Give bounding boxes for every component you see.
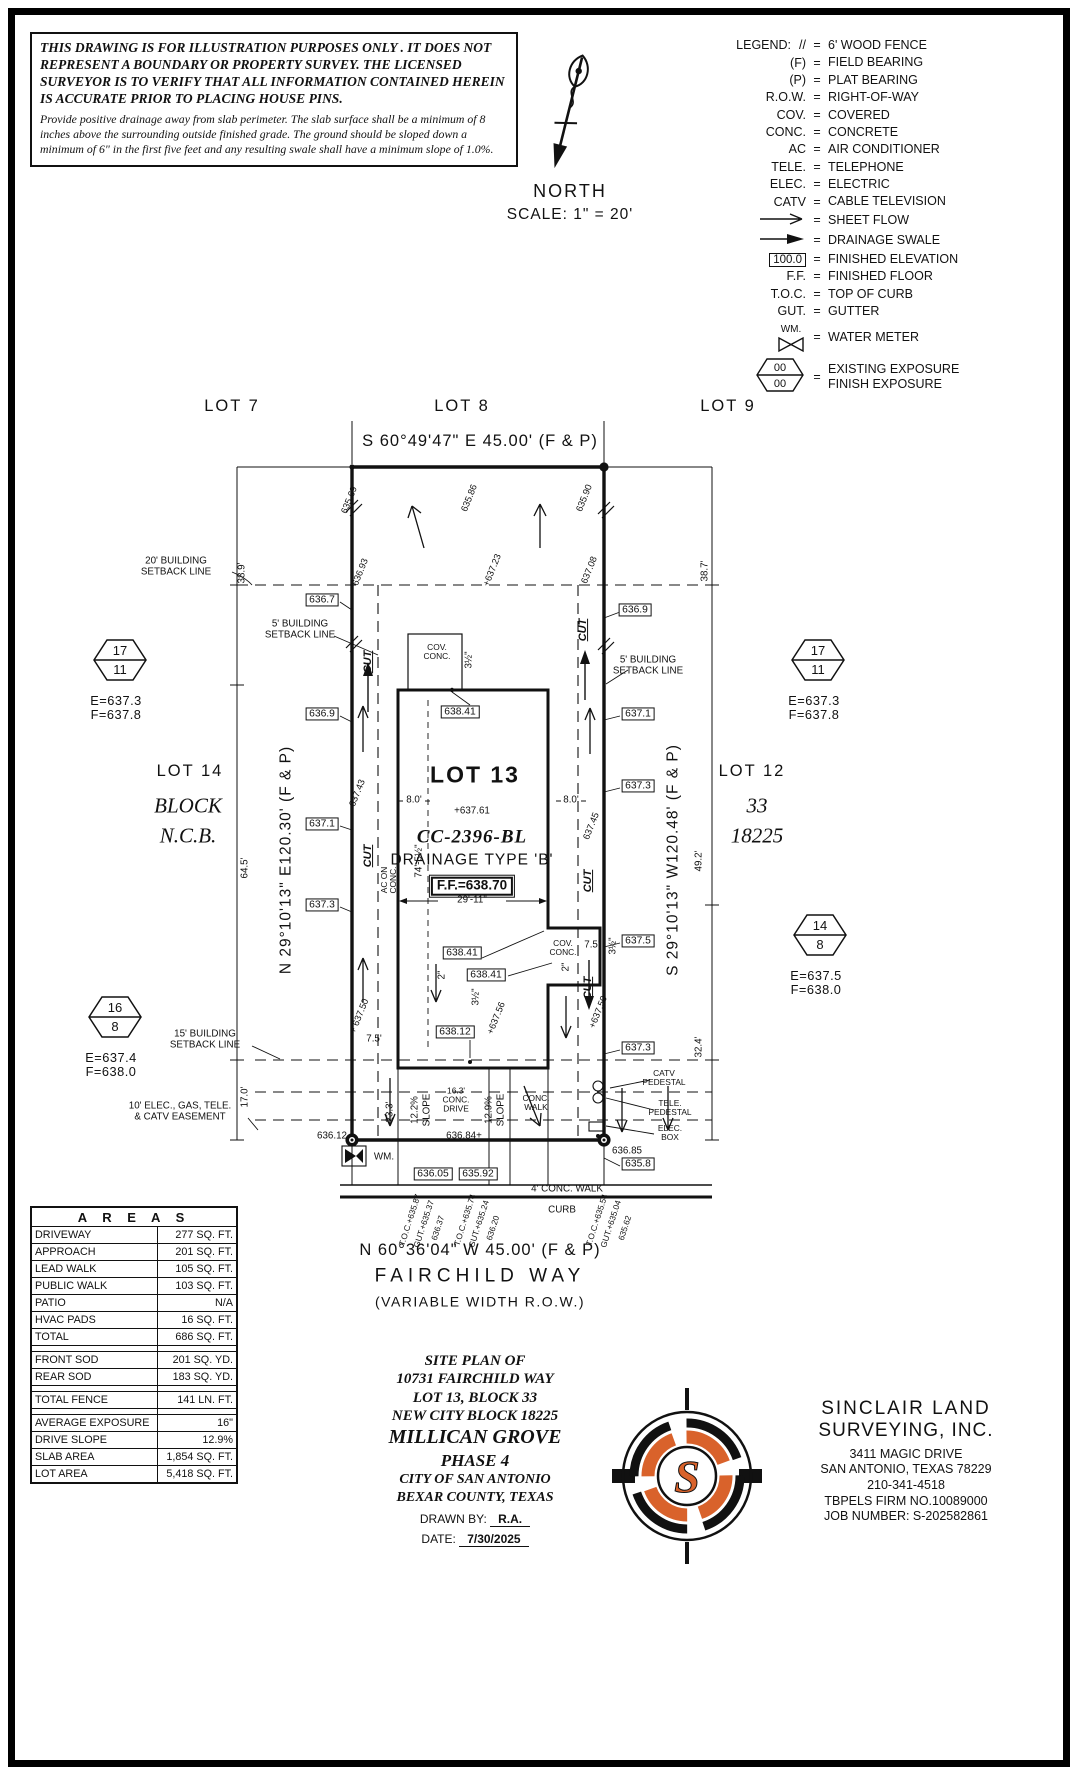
label-easement: 10' ELEC., GAS, TELE. & CATV EASEMENT [129, 1101, 231, 1122]
areas-row-6: TOTAL686 SQ. FT. [31, 1329, 237, 1346]
label-bx-636-9-r: 636.9 [619, 603, 652, 616]
label-dim-32-4: 32.4' [695, 1037, 706, 1058]
label-row-note: (VARIABLE WIDTH R.O.W.) [375, 1294, 585, 1309]
areas-label: SLAB AREA [31, 1449, 158, 1466]
label-in-3h-b: 3½" [472, 988, 483, 1005]
label-bx-636-05: 636.05 [414, 1167, 453, 1180]
label-bx-637-1-r: 637.1 [622, 707, 655, 720]
areas-row-1: APPROACH201 SQ. FT. [31, 1244, 237, 1261]
areas-value: 686 SQ. FT. [158, 1329, 238, 1346]
areas-row-2: LEAD WALK105 SQ. FT. [31, 1261, 237, 1278]
label-el-635-86: 635.86 [459, 483, 479, 513]
label-el-637-45: 637.45 [581, 811, 601, 841]
label-dim-7-5-right: 7.5' [584, 941, 600, 952]
title-line-3: NEW CITY BLOCK 18225 [305, 1407, 645, 1425]
label-hx1-e: E=637.3 [90, 694, 142, 708]
title-line-2: LOT 13, BLOCK 33 [305, 1389, 645, 1407]
areas-value: 201 SQ. YD. [158, 1352, 238, 1369]
areas-title: A R E A S [31, 1207, 237, 1227]
areas-row-14: DRIVE SLOPE12.9% [31, 1432, 237, 1449]
label-bx-637-1-l: 637.1 [306, 817, 339, 830]
areas-label: LOT AREA [31, 1466, 158, 1484]
label-dim-38-7: 38.7' [701, 561, 712, 582]
areas-label: HVAC PADS [31, 1312, 158, 1329]
label-slope-12-9-w: SLOPE [497, 1094, 508, 1127]
areas-row-13: AVERAGE EXPOSURE16" [31, 1415, 237, 1432]
areas-row-16: LOT AREA5,418 SQ. FT. [31, 1466, 237, 1484]
areas-table: A R E A SDRIVEWAY277 SQ. FT.APPROACH201 … [30, 1206, 238, 1484]
svg-text:S: S [674, 1451, 700, 1502]
label-slope-12-2-w: SLOPE [423, 1094, 434, 1127]
label-dim-64-5: 64.5' [241, 858, 252, 879]
label-sb20: 20' BUILDING SETBACK LINE [141, 556, 211, 577]
label-el-636-85: 636.85 [612, 1147, 642, 1158]
label-wm: WM. [374, 1153, 394, 1164]
label-lot7: LOT 7 [204, 398, 260, 416]
label-dim-8-right: 8.0' [563, 796, 579, 807]
label-lot12: LOT 12 [719, 763, 786, 781]
firm-job-number: JOB NUMBER: S-202582861 [758, 1509, 1054, 1525]
areas-label: AVERAGE EXPOSURE [31, 1415, 158, 1432]
areas-value: 12.9% [158, 1432, 238, 1449]
areas-row-8: FRONT SOD201 SQ. YD. [31, 1352, 237, 1369]
label-cut1: CUT [363, 651, 375, 674]
areas-row-15: SLAB AREA1,854 SQ. FT. [31, 1449, 237, 1466]
label-dim-8-left: 8.0' [406, 796, 422, 807]
label-cut5: CUT [583, 977, 595, 1000]
label-dim-17-0: 17.0' [241, 1087, 252, 1108]
label-dim-49-2: 49.2' [695, 851, 706, 872]
label-ncb-num: 18225 [731, 825, 784, 848]
label-spot-637-61: +637.61 [454, 807, 490, 818]
label-hx2-top: 17 [811, 644, 825, 658]
firm-block: SINCLAIR LAND SURVEYING, INC. 3411 MAGIC… [758, 1398, 1054, 1525]
title-line-0: SITE PLAN OF [305, 1352, 645, 1370]
areas-row-0: DRIVEWAY277 SQ. FT. [31, 1227, 237, 1244]
label-hx3-f: F=638.0 [791, 983, 842, 997]
areas-row-11: TOTAL FENCE141 LN. FT. [31, 1392, 237, 1409]
title-line-7: BEXAR COUNTY, TEXAS [305, 1489, 645, 1507]
label-dim-23-3: 23.3' [386, 1102, 397, 1123]
label-street: FAIRCHILD WAY [375, 1267, 586, 1288]
areas-value: 141 LN. FT. [158, 1392, 238, 1409]
label-tele-ped: TELE. PEDESTAL [648, 1099, 691, 1117]
label-sb5-right: 5' BUILDING SETBACK LINE [613, 655, 683, 676]
label-g2: 636.20 [485, 1215, 501, 1242]
label-dim-74: 74'-5½" [415, 844, 426, 877]
areas-label: REAR SOD [31, 1369, 158, 1386]
label-el-637-50-l: + 637.50 [348, 997, 371, 1035]
label-el-637-43: 637.43 [347, 778, 367, 808]
areas-value: 5,418 SQ. FT. [158, 1466, 238, 1484]
label-cov-conc-right: COV. CONC. [550, 939, 577, 957]
label-el-637-08: 637.08 [579, 555, 599, 585]
areas-value: 16 SQ. FT. [158, 1312, 238, 1329]
title-line-6: CITY OF SAN ANTONIO [305, 1471, 645, 1489]
label-slope-12-2: 12.2% [411, 1096, 422, 1124]
label-hx4-f: F=638.0 [86, 1065, 137, 1079]
label-curb: CURB [548, 1206, 576, 1217]
label-bx-638-12: 638.12 [436, 1025, 475, 1038]
areas-value: 201 SQ. FT. [158, 1244, 238, 1261]
label-hx1-top: 17 [113, 644, 127, 658]
label-conc-walk: CONC. WALK [523, 1094, 550, 1112]
drawn-by-label: DRAWN BY: [420, 1512, 487, 1526]
site-plan-sheet: THIS DRAWING IS FOR ILLUSTRATION PURPOSE… [0, 0, 1078, 1775]
areas-value: 103 SQ. FT. [158, 1278, 238, 1295]
title-line-1: 10731 FAIRCHILD WAY [305, 1370, 645, 1388]
label-cut2: CUT [363, 845, 375, 868]
label-bx-635-92: 635.92 [459, 1167, 498, 1180]
title-block-lines: SITE PLAN OF10731 FAIRCHILD WAYLOT 13, B… [305, 1352, 645, 1506]
label-bear-top: S 60°49'47" E 45.00' (F & P) [362, 433, 598, 451]
date-label: DATE: [421, 1532, 455, 1546]
title-line-4: MILLICAN GROVE [305, 1425, 645, 1450]
label-bear-bottom: N 60°36'04" W 45.00' (F & P) [359, 1242, 600, 1260]
date-row: DATE: 7/30/2025 [305, 1532, 645, 1546]
sinclair-logo: S [612, 1386, 762, 1571]
areas-label: PATIO [31, 1295, 158, 1312]
label-bear-right: S 29°10'13" W120.48' (F & P) [666, 744, 683, 976]
label-el-637-50-r: +637.50 [587, 994, 609, 1029]
firm-tbpels: TBPELS FIRM NO.10089000 [758, 1494, 1054, 1510]
label-hx2-bot: 11 [811, 663, 825, 677]
label-ac-on: AC ON CONC. [380, 867, 398, 894]
label-dim-7-5-left: 7.5' [366, 1035, 382, 1046]
label-bx-637-3-r1: 637.3 [622, 779, 655, 792]
label-in-3h-c: 3½" [609, 937, 620, 954]
label-bx-638-41-a: 638.41 [441, 705, 480, 718]
label-hx1-f: F=637.8 [91, 708, 142, 722]
areas-label: APPROACH [31, 1244, 158, 1261]
label-hx1-bot: 11 [113, 663, 127, 677]
areas-label: TOTAL FENCE [31, 1392, 158, 1409]
label-el-636-12: 636.12 [317, 1132, 347, 1143]
areas-label: DRIVE SLOPE [31, 1432, 158, 1449]
areas-row-5: HVAC PADS16 SQ. FT. [31, 1312, 237, 1329]
label-hx4-top: 16 [108, 1001, 122, 1015]
label-bx-635-8: 635.8 [622, 1157, 655, 1170]
areas-value: 16" [158, 1415, 238, 1432]
label-el-636-93: 636.93 [350, 557, 370, 587]
label-cov-conc-top: COV. CONC. [424, 643, 451, 661]
label-walk4: 4' CONC. WALK [531, 1185, 603, 1196]
date-value: 7/30/2025 [459, 1532, 528, 1547]
label-bx-638-41-c: 638.41 [467, 968, 506, 981]
label-sb15: 15' BUILDING SETBACK LINE [170, 1029, 240, 1050]
label-bear-left: N 29°10'13" E120.30' (F & P) [279, 746, 296, 974]
label-hx2-e: E=637.3 [788, 694, 840, 708]
areas-row-4: PATION/A [31, 1295, 237, 1312]
firm-address-1: 3411 MAGIC DRIVE [758, 1447, 1054, 1463]
areas-row-9: REAR SOD183 SQ. YD. [31, 1369, 237, 1386]
areas-label: TOTAL [31, 1329, 158, 1346]
label-el-637-56: +637.56 [485, 1000, 507, 1035]
drawn-by-value: R.A. [490, 1512, 530, 1527]
label-slope-12-9: 12.9% [485, 1096, 496, 1124]
label-elec-box: ELEC. BOX [658, 1124, 682, 1142]
label-lot9: LOT 9 [700, 398, 756, 416]
areas-value: 277 SQ. FT. [158, 1227, 238, 1244]
label-bx-637-5-r: 637.5 [622, 934, 655, 947]
areas-value: N/A [158, 1295, 238, 1312]
label-el-637-23: +637.23 [481, 552, 503, 587]
label-hx4-bot: 8 [111, 1020, 118, 1034]
label-lot8: LOT 8 [434, 398, 490, 416]
label-hx4-e: E=637.4 [85, 1051, 137, 1065]
label-el-635-90: 635.90 [574, 483, 594, 513]
areas-value: 105 SQ. FT. [158, 1261, 238, 1278]
label-bx-638-41-b: 638.41 [443, 946, 482, 959]
label-hx3-bot: 8 [816, 938, 823, 952]
label-bx-636-7: 636.7 [306, 593, 339, 606]
firm-phone: 210-341-4518 [758, 1478, 1054, 1494]
title-line-5: PHASE 4 [305, 1450, 645, 1471]
firm-name-1: SINCLAIR LAND [758, 1398, 1054, 1420]
label-hx3-e: E=637.5 [790, 969, 842, 983]
label-in-3h-a: 3½" [465, 651, 476, 668]
label-el-636-84: 636.84+ [446, 1132, 482, 1143]
firm-name-2: SURVEYING, INC. [758, 1420, 1054, 1442]
label-ncb-word: N.C.B. [160, 825, 217, 848]
label-hx3-top: 14 [813, 919, 827, 933]
label-dim-38-9: 38.9' [238, 563, 249, 584]
label-hx2-f: F=637.8 [789, 708, 840, 722]
label-bx-636-9-l: 636.9 [306, 707, 339, 720]
label-cut4: CUT [583, 870, 595, 893]
areas-value: 1,854 SQ. FT. [158, 1449, 238, 1466]
areas-label: PUBLIC WALK [31, 1278, 158, 1295]
areas-label: DRIVEWAY [31, 1227, 158, 1244]
label-g3: 635.62 [617, 1215, 633, 1242]
label-conc-drive: 16.3' CONC. DRIVE [443, 1086, 470, 1113]
areas-value: 183 SQ. YD. [158, 1369, 238, 1386]
label-bx-637-3-r2: 637.3 [622, 1041, 655, 1054]
label-bx-637-3-l: 637.3 [306, 898, 339, 911]
areas-label: LEAD WALK [31, 1261, 158, 1278]
label-g1: 636.37 [430, 1215, 446, 1242]
label-ff: F.F.=638.70 [431, 877, 513, 896]
areas-row-3: PUBLIC WALK103 SQ. FT. [31, 1278, 237, 1295]
label-lot13: LOT 13 [430, 763, 520, 788]
label-cut3: CUT [578, 619, 590, 642]
title-block: SITE PLAN OF10731 FAIRCHILD WAYLOT 13, B… [305, 1352, 645, 1546]
label-dim-29-11: 29'-11" [457, 896, 487, 907]
label-catv-ped: CATV PEDESTAL [642, 1069, 685, 1087]
sinclair-logo-icon: S [612, 1386, 762, 1566]
label-in-2-b: 2" [438, 971, 449, 980]
label-block-num: 33 [747, 795, 768, 818]
areas-label: FRONT SOD [31, 1352, 158, 1369]
label-block-word: BLOCK [154, 795, 222, 818]
label-cc-number: CC-2396-BL [417, 828, 527, 849]
label-lot14: LOT 14 [157, 763, 224, 781]
firm-address-2: SAN ANTONIO, TEXAS 78229 [758, 1462, 1054, 1478]
label-sb5-left: 5' BUILDING SETBACK LINE [265, 619, 335, 640]
label-el-635-69: 635.69 [339, 485, 359, 515]
drawn-by-row: DRAWN BY: R.A. [305, 1512, 645, 1526]
label-in-2-a: 2" [562, 963, 573, 972]
